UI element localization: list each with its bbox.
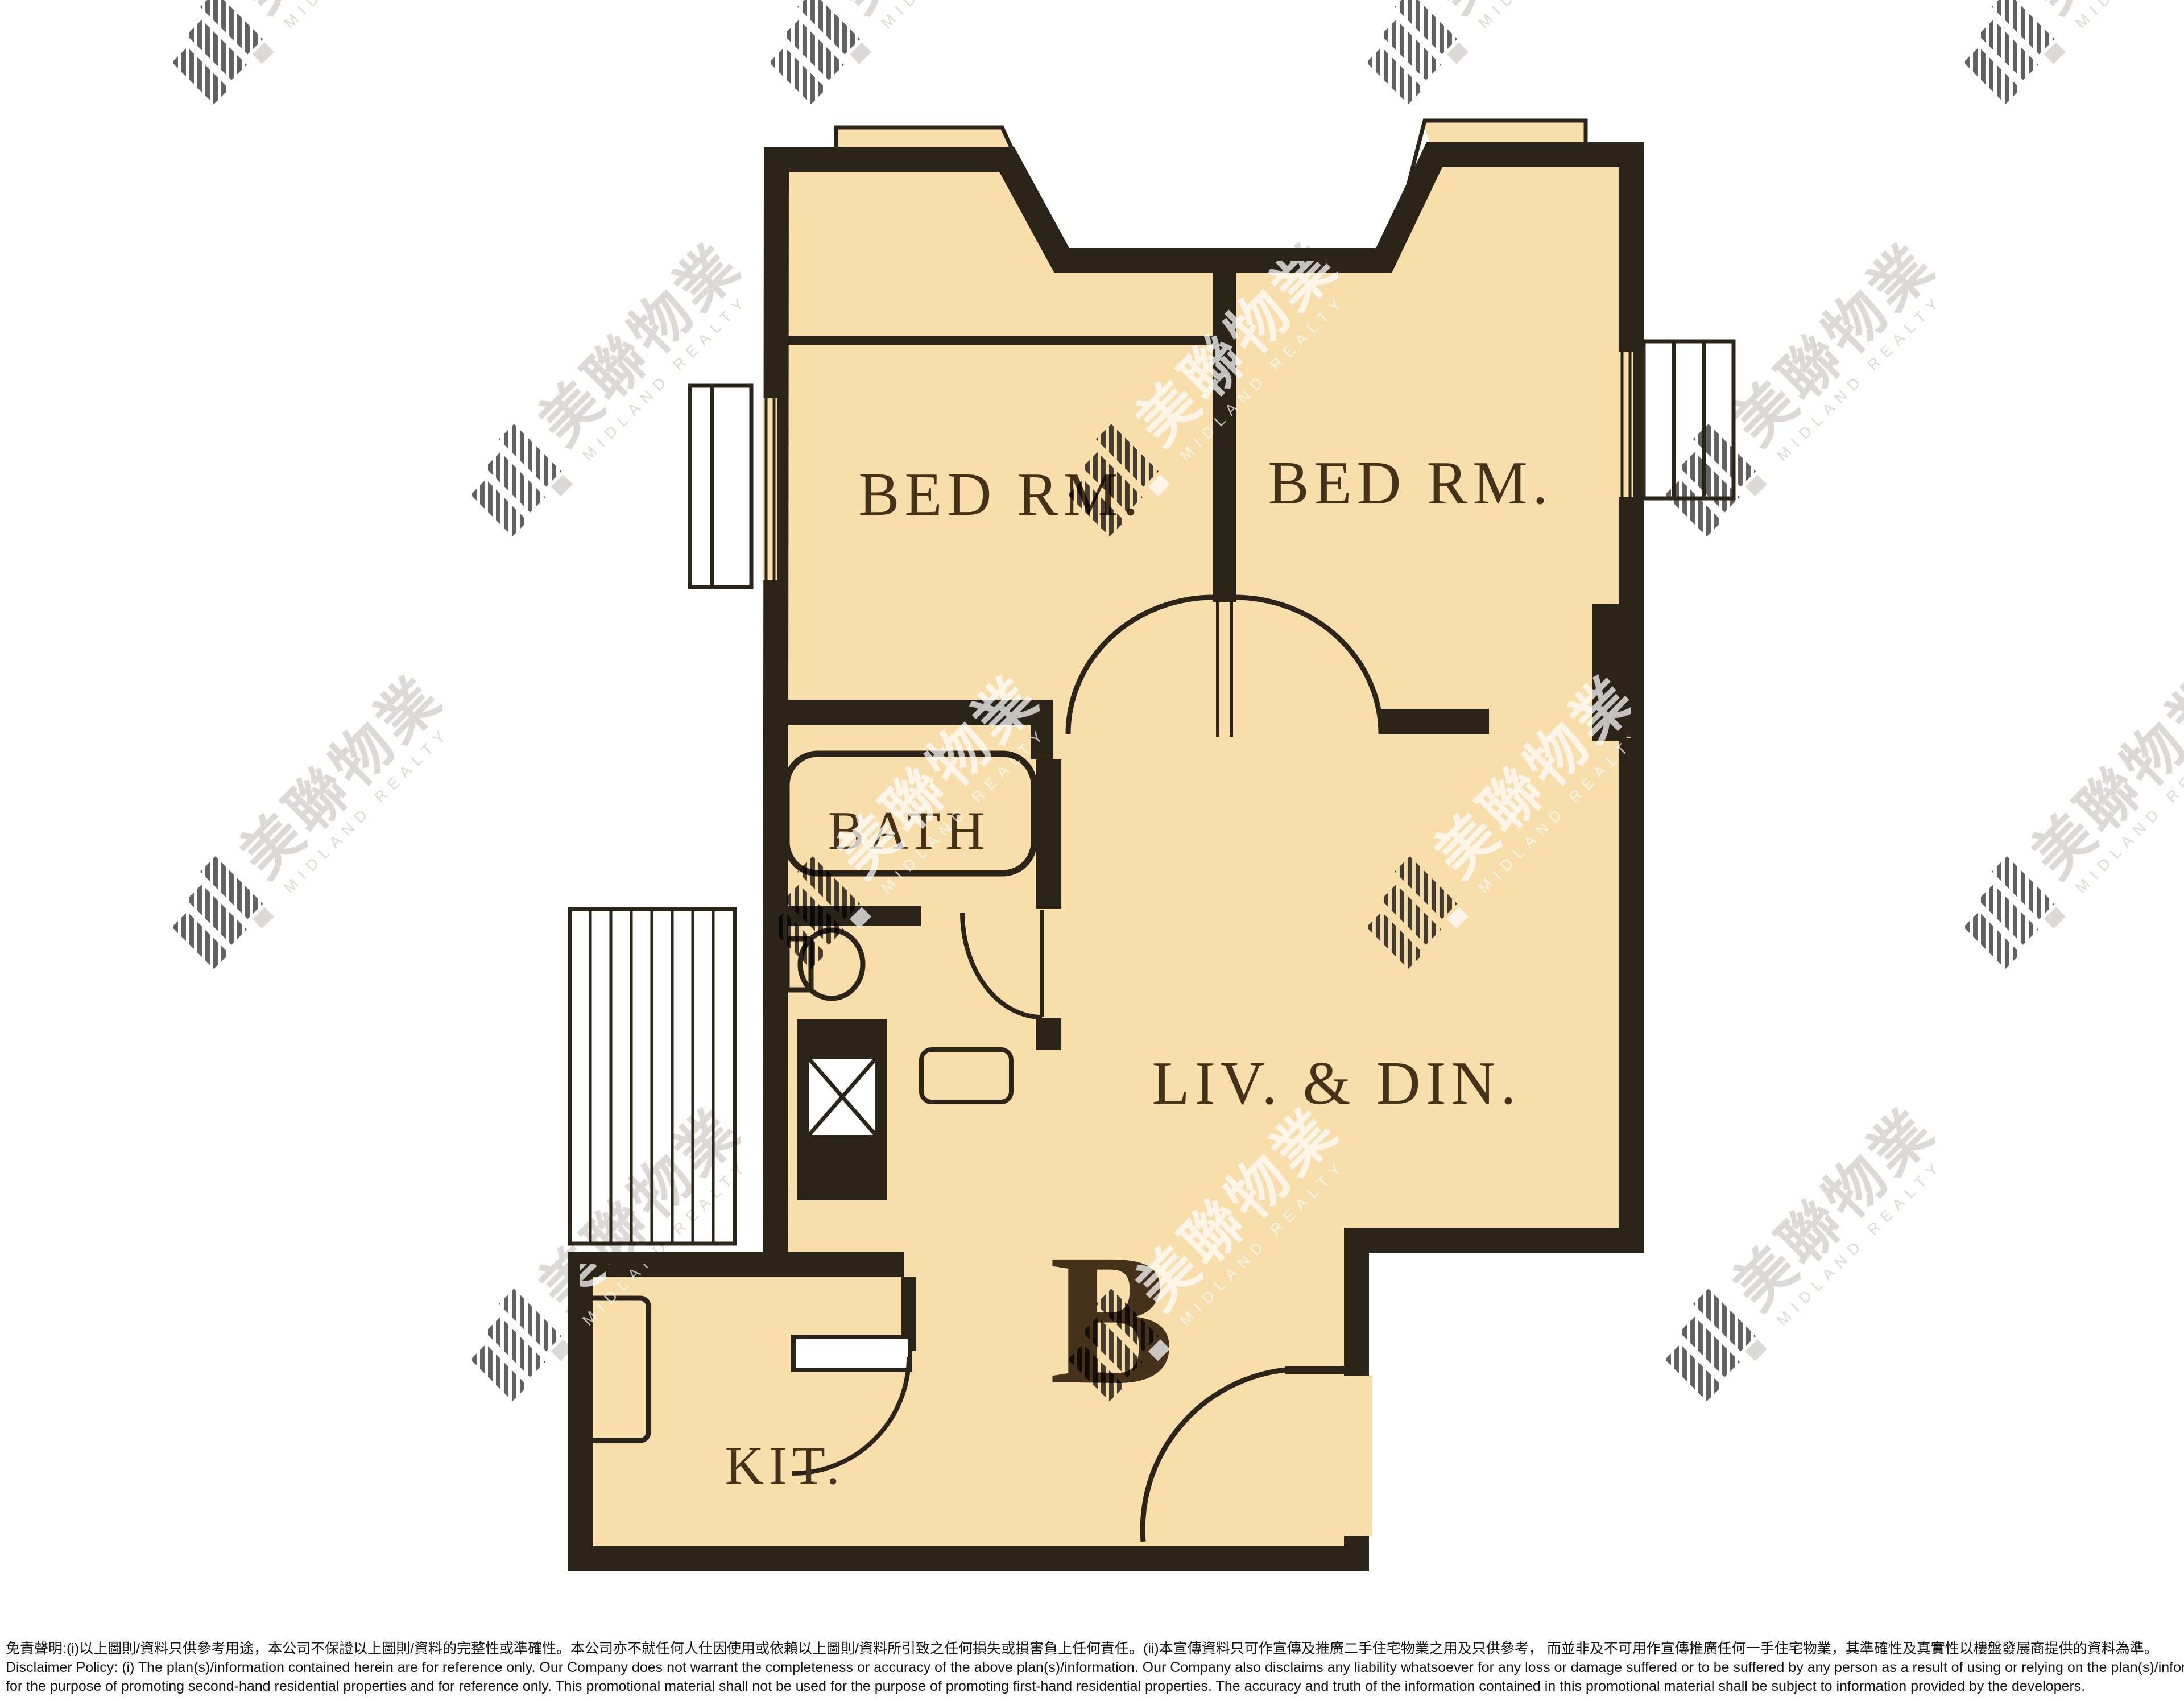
duct-shaft [806, 1056, 878, 1138]
wall-kitchen-north [580, 1252, 904, 1277]
wall-bedroom-divider [1213, 261, 1236, 602]
wall-bedroom-right-south [1381, 709, 1489, 734]
label-bedroom-right: BED RM. [1268, 449, 1553, 517]
label-bedroom-left: BED RM. [858, 461, 1143, 529]
disclaimer-line-en-1: Disclaimer Policy: (i) The plan(s)/infor… [6, 1658, 2179, 1677]
entry-doorway-gap [1341, 1376, 1372, 1536]
wall-bath-south [766, 906, 921, 926]
staircase-hatch [570, 909, 735, 1244]
label-bathroom: BATH [828, 800, 990, 861]
floor-plan: BED RM. BED RM. LIV. & DIN. BATH KIT. B [0, 0, 2184, 1701]
window-box-left [690, 386, 751, 587]
disclaimer-line-en-2: for the purpose of promoting second-hand… [6, 1677, 2179, 1696]
kitchen-door-leaf [793, 1337, 910, 1370]
disclaimer: 免責聲明:(i)以上圖則/資料只供參考用途，本公司不保證以上圖則/資料的完整性或… [6, 1640, 2179, 1696]
unit-letter: B [1049, 1216, 1174, 1423]
wall-bedroom-left-south [766, 700, 1053, 725]
label-living-dining: LIV. & DIN. [1152, 1050, 1521, 1117]
ac-platform-right [1644, 341, 1734, 498]
wall-bath-east-lower [1036, 1018, 1061, 1050]
label-kitchen: KIT. [725, 1435, 845, 1496]
wall-bath-east-upper [1036, 759, 1061, 909]
disclaimer-line-zh: 免責聲明:(i)以上圖則/資料只供參考用途，本公司不保證以上圖則/資料的完整性或… [6, 1640, 2179, 1658]
column-right-wall [1592, 604, 1631, 741]
